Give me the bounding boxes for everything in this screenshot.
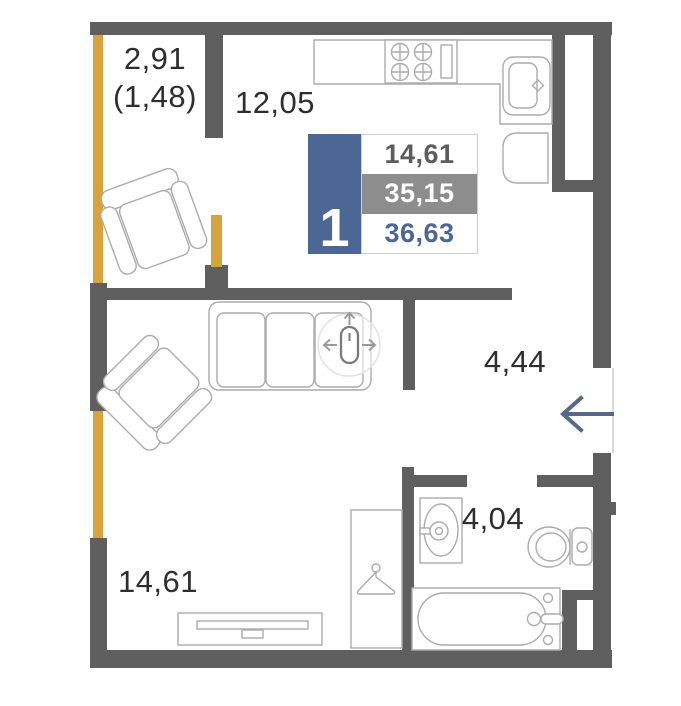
wall [537, 475, 593, 487]
balcony-area-reduced: (1,48) [95, 78, 215, 116]
kitchen-living-label: 12,05 [225, 84, 325, 122]
wall-nub [610, 502, 616, 515]
wall [403, 292, 415, 390]
kitchen-sink-icon [503, 57, 550, 115]
wall [414, 475, 467, 487]
hallway-label: 4,44 [475, 343, 555, 381]
stove-icon [385, 40, 457, 83]
wall [552, 35, 565, 192]
wall [90, 22, 612, 35]
wall [90, 650, 612, 668]
hanger-icon [357, 564, 394, 594]
area-info-card: 1 14,61 35,15 36,63 [308, 134, 478, 254]
wall [90, 538, 107, 668]
area-without-balcony-value: 35,15 [362, 174, 477, 213]
toilet-icon [528, 527, 592, 567]
wall [552, 180, 597, 192]
window-marker [211, 215, 222, 267]
kitchen-counter [314, 40, 552, 124]
wall [593, 22, 611, 368]
bathroom-label: 4,04 [453, 500, 533, 538]
wall [90, 288, 512, 300]
wall [90, 283, 107, 411]
balcony-label: 2,91 (1,48) [95, 40, 215, 116]
living-room-label: 14,61 [113, 563, 203, 601]
furniture-move-handle[interactable] [318, 313, 380, 376]
sofa-icon [209, 302, 371, 390]
floor-plan: 2,91 (1,48) 12,05 4,44 4,04 14,61 1 14,6… [0, 0, 681, 706]
wardrobe-icon [351, 510, 402, 648]
balcony-armchair-icon [93, 164, 209, 277]
entrance-arrow-icon [563, 398, 612, 430]
rooms-count: 1 [319, 204, 349, 254]
fridge-icon [503, 133, 548, 183]
living-area-value: 14,61 [362, 135, 477, 174]
window-marker [93, 411, 103, 538]
wall [593, 453, 611, 668]
wall [562, 590, 593, 600]
area-values: 14,61 35,15 36,63 [361, 134, 478, 254]
rooms-count-badge: 1 [308, 134, 361, 254]
living-armchair-icon [89, 331, 216, 458]
balcony-area: 2,91 [95, 40, 215, 78]
total-area-value: 36,63 [362, 214, 477, 253]
tv-stand-icon [178, 613, 322, 645]
bathtub-icon [412, 588, 563, 650]
wall [402, 467, 414, 652]
